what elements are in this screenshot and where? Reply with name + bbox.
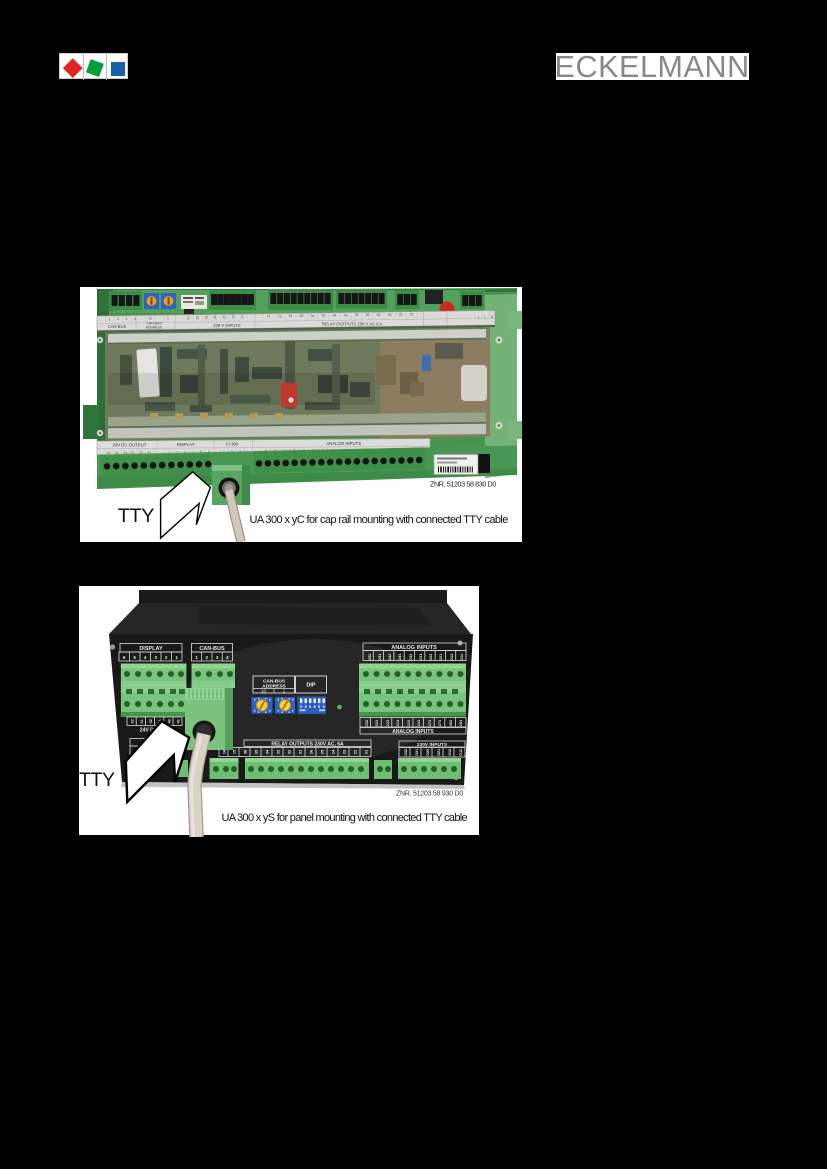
svg-text:3: 3 xyxy=(216,655,219,660)
svg-text:63: 63 xyxy=(300,314,304,318)
svg-text:ZNR. 51203 58 830 D0: ZNR. 51203 58 830 D0 xyxy=(430,480,496,489)
svg-text:36: 36 xyxy=(232,315,236,319)
svg-text:212: 212 xyxy=(406,719,411,726)
svg-text:2: 2 xyxy=(206,655,209,660)
svg-text:212: 212 xyxy=(449,653,454,660)
svg-text:230 V INPUTS: 230 V INPUTS xyxy=(213,323,241,328)
svg-text:31: 31 xyxy=(298,749,303,754)
svg-text:232: 232 xyxy=(408,653,413,660)
svg-text:CAN-BUS: CAN-BUS xyxy=(199,646,225,652)
svg-text:25: 25 xyxy=(320,749,325,754)
svg-text:38: 38 xyxy=(355,313,359,317)
svg-text:4: 4 xyxy=(134,317,136,321)
svg-text:4: 4 xyxy=(226,655,229,660)
svg-text:D11: D11 xyxy=(459,749,463,756)
svg-text:211: 211 xyxy=(416,719,421,726)
svg-text:6: 6 xyxy=(123,655,126,660)
svg-text:RELAY OUTPUTS 230V AC, 6A: RELAY OUTPUTS 230V AC, 6A xyxy=(271,741,344,747)
svg-text:252: 252 xyxy=(367,653,372,660)
svg-text:64: 64 xyxy=(289,314,293,318)
svg-text:D21: D21 xyxy=(437,749,441,756)
svg-text:L: L xyxy=(485,315,487,319)
svg-text:DIP: DIP xyxy=(306,683,316,689)
svg-text:26: 26 xyxy=(309,749,314,754)
svg-text:222: 222 xyxy=(428,653,433,660)
svg-text:232: 232 xyxy=(364,719,369,726)
svg-text:23: 23 xyxy=(342,749,347,754)
svg-text:3: 3 xyxy=(154,655,157,660)
svg-text:DISPLAY: DISPLAY xyxy=(139,646,163,652)
svg-text:52: 52 xyxy=(149,719,153,723)
svg-text:35: 35 xyxy=(223,315,227,319)
svg-text:UA 300 x yC for cap rail mount: UA 300 x yC for cap rail mounting with c… xyxy=(250,514,509,526)
svg-text:62: 62 xyxy=(131,719,135,723)
svg-text:TTY: TTY xyxy=(79,769,115,791)
svg-text:TTY: TTY xyxy=(118,505,155,527)
svg-text:33: 33 xyxy=(276,749,281,754)
svg-text:222: 222 xyxy=(385,719,390,726)
svg-text:74: 74 xyxy=(267,314,271,318)
svg-text:242: 242 xyxy=(387,653,392,660)
svg-text:24: 24 xyxy=(331,749,336,754)
svg-text:34: 34 xyxy=(214,315,218,319)
svg-text:1: 1 xyxy=(195,655,198,660)
svg-text:4: 4 xyxy=(144,655,147,660)
svg-text:211: 211 xyxy=(459,653,464,660)
svg-text:24V DC OUTPUT: 24V DC OUTPUT xyxy=(112,442,146,447)
svg-text:2: 2 xyxy=(117,317,119,321)
svg-text:73: 73 xyxy=(278,314,282,318)
svg-text:ANALOG INPUTS: ANALOG INPUTS xyxy=(391,645,437,651)
svg-text:43: 43 xyxy=(344,313,348,317)
svg-text:272: 272 xyxy=(427,719,432,726)
svg-text:35: 35 xyxy=(377,313,381,317)
svg-text:32: 32 xyxy=(196,316,200,320)
svg-text:36: 36 xyxy=(243,749,248,754)
svg-text:10: 10 xyxy=(148,317,152,321)
svg-text:⊥: ⊥ xyxy=(477,315,480,319)
svg-text:D31: D31 xyxy=(415,749,419,756)
svg-text:DISPLAY: DISPLAY xyxy=(177,442,195,447)
svg-text:221: 221 xyxy=(438,653,443,660)
svg-text:231: 231 xyxy=(418,653,423,660)
svg-text:ADDRESS: ADDRESS xyxy=(146,325,163,329)
svg-text:21: 21 xyxy=(364,749,369,754)
svg-text:37: 37 xyxy=(241,315,245,319)
svg-text:10: 10 xyxy=(261,689,266,694)
svg-text:1: 1 xyxy=(109,317,111,321)
svg-text:221: 221 xyxy=(395,719,400,726)
svg-text:262: 262 xyxy=(448,719,453,726)
svg-text:3: 3 xyxy=(126,317,128,321)
svg-text:CI 300: CI 300 xyxy=(226,442,239,447)
svg-text:28: 28 xyxy=(388,313,392,317)
svg-text:35: 35 xyxy=(254,749,259,754)
svg-text:231: 231 xyxy=(374,719,379,726)
svg-text:1: 1 xyxy=(175,655,178,660)
svg-text:32: 32 xyxy=(287,749,292,754)
svg-text:34: 34 xyxy=(265,749,270,754)
svg-text:241: 241 xyxy=(397,653,402,660)
svg-text:41: 41 xyxy=(177,719,181,723)
svg-text:5: 5 xyxy=(133,655,136,660)
svg-text:2: 2 xyxy=(165,655,168,660)
svg-text:53: 53 xyxy=(322,314,326,318)
svg-text:ANALOG INPUTS: ANALOG INPUTS xyxy=(392,729,434,735)
svg-text:CAN-BUS: CAN-BUS xyxy=(108,324,127,329)
svg-text:54: 54 xyxy=(311,314,315,318)
svg-text:230V INPUTS: 230V INPUTS xyxy=(417,742,448,748)
svg-text:25: 25 xyxy=(410,313,414,317)
svg-text:RELAY OUTPUTS 230 V AC 6 A: RELAY OUTPUTS 230 V AC 6 A xyxy=(322,322,383,327)
svg-text:36: 36 xyxy=(366,313,370,317)
svg-text:D32: D32 xyxy=(404,749,408,756)
svg-text:ANALOG INPUTS: ANALOG INPUTS xyxy=(326,441,361,446)
svg-text:42: 42 xyxy=(167,719,171,723)
svg-text:26: 26 xyxy=(399,313,403,317)
svg-text:31: 31 xyxy=(187,316,191,320)
svg-text:33: 33 xyxy=(205,316,209,320)
svg-text:44: 44 xyxy=(333,314,337,318)
svg-text:61: 61 xyxy=(140,719,144,723)
svg-text:251: 251 xyxy=(377,653,382,660)
svg-text:CAN-BUS: CAN-BUS xyxy=(263,678,286,684)
svg-text:ZNR. 51203 58 930 D0: ZNR. 51203 58 930 D0 xyxy=(396,791,463,798)
svg-text:271: 271 xyxy=(437,719,442,726)
svg-text:D22: D22 xyxy=(426,749,430,756)
svg-text:1: 1 xyxy=(167,316,169,320)
svg-text:22: 22 xyxy=(353,749,358,754)
svg-text:D12: D12 xyxy=(448,749,452,756)
svg-text:UA 300 x yS for panel mounting: UA 300 x yS for panel mounting with conn… xyxy=(222,812,468,824)
svg-text:261: 261 xyxy=(458,719,463,726)
